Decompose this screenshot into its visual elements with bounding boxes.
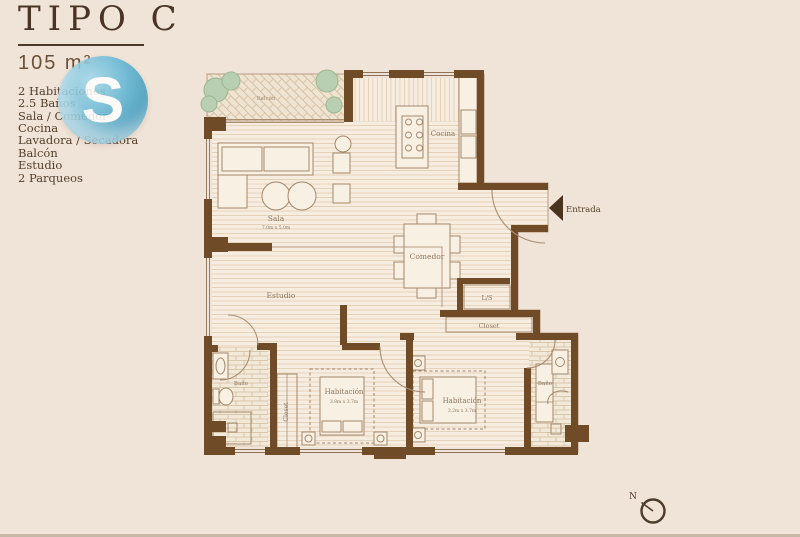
entrance-marker: Entrada	[549, 195, 601, 221]
bath-right-label: Baño	[538, 380, 553, 387]
closet-vertical-label: Closet	[283, 402, 290, 422]
entrance-label: Entrada	[566, 205, 601, 215]
bath-left-label: Baño	[234, 380, 249, 387]
ottoman	[288, 182, 316, 210]
title-divider	[18, 44, 144, 46]
side-table	[335, 136, 351, 152]
watermark-logo-sphere: S	[58, 56, 148, 144]
apartment-floor	[207, 74, 578, 452]
feature-parqueos: 2 Parqueos	[18, 172, 198, 184]
kitchen-label: Cocina	[431, 130, 455, 138]
window	[435, 447, 505, 455]
compass: N	[629, 492, 664, 523]
nightstand	[374, 432, 387, 445]
kitchen-counter	[459, 77, 477, 183]
window	[235, 447, 265, 455]
balcony	[201, 70, 352, 123]
window	[204, 139, 212, 199]
toilet-tank	[213, 389, 219, 404]
window	[363, 70, 389, 78]
nightstand	[302, 432, 315, 445]
feature-estudio: Estudio	[18, 159, 198, 171]
nightstand	[411, 428, 425, 442]
bathroom-right-shelf	[536, 364, 553, 422]
tree-icon	[316, 70, 338, 92]
bedroom2-label: Habitación	[443, 397, 482, 405]
armchair	[333, 153, 350, 173]
page-title: TIPO C	[18, 2, 198, 38]
closet-label: Closet	[479, 322, 500, 330]
logo-letter: S	[82, 63, 125, 137]
window	[204, 258, 212, 336]
study-label: Estudio	[267, 291, 296, 300]
tree-icon	[326, 97, 342, 113]
armchair	[333, 184, 350, 203]
laundry-label: L/S	[482, 294, 493, 302]
window	[424, 70, 454, 78]
sink	[552, 350, 568, 374]
living-dims: 7.0m x 5.0m	[262, 225, 291, 231]
kitchen-island	[396, 106, 428, 168]
sink	[213, 353, 228, 379]
tree-icon	[222, 72, 240, 90]
floorplan-page: TIPO C 105 m² 2 Habitaciones 2.5 Baños S…	[0, 0, 800, 537]
tree-icon	[201, 96, 217, 112]
balcony-label: Balcón	[256, 95, 275, 102]
nightstand	[411, 356, 425, 370]
ottoman	[262, 182, 290, 210]
living-label: Sala	[268, 214, 285, 223]
toilet	[219, 388, 233, 405]
window	[300, 447, 362, 455]
bedroom1-label: Habitación	[325, 388, 364, 396]
compass-north-label: N	[629, 492, 637, 502]
dining-label: Comedor	[410, 252, 445, 261]
bedroom1-dims: 3.8m x 3.7m	[330, 399, 359, 405]
entrance-arrow-icon	[549, 195, 563, 221]
bedroom2-dims: 3.2m x 3.7m	[448, 408, 477, 414]
